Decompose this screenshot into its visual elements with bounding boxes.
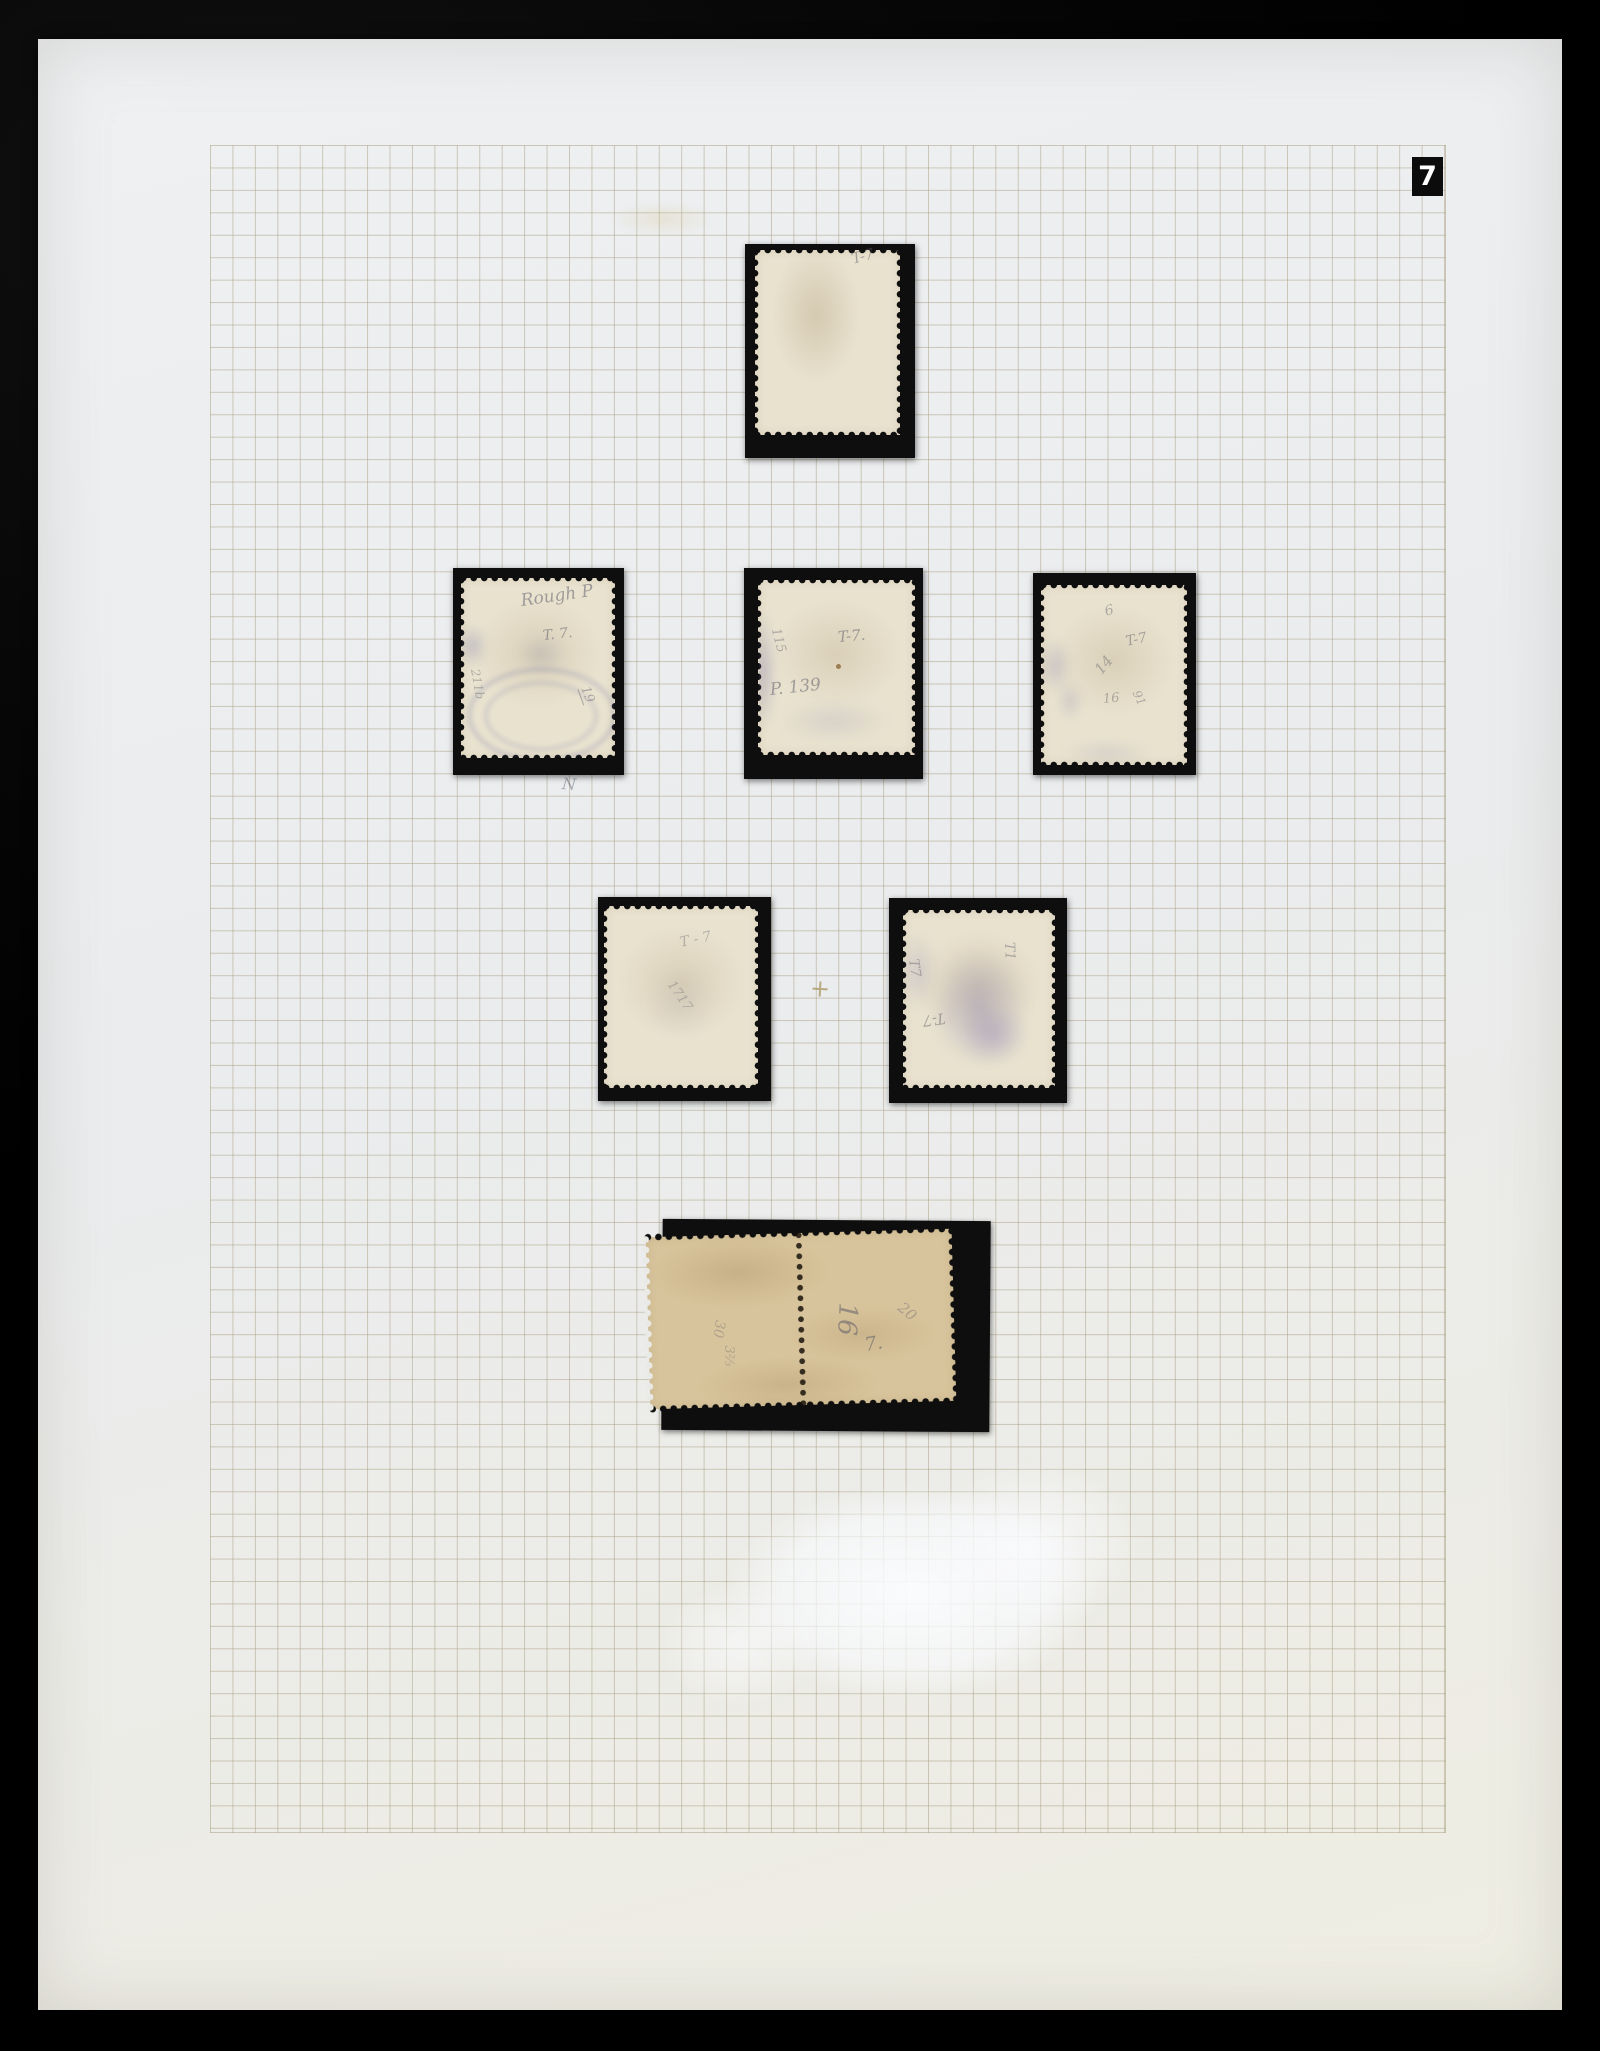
ink-smudge xyxy=(462,624,488,668)
ink-smudge xyxy=(959,1006,1029,1066)
ink-smudge xyxy=(1062,741,1152,764)
ink-smudge xyxy=(1056,681,1084,721)
stamp-6: T7 T1 T-7 xyxy=(903,910,1055,1088)
pencil-mark-n: N xyxy=(561,776,576,793)
pencil-annotation: 16 xyxy=(833,1302,860,1336)
pencil-annotation: 3⅔ xyxy=(722,1345,735,1366)
cross-registration-mark: + xyxy=(809,976,830,1001)
pencil-annotation: T-7 xyxy=(921,1010,946,1028)
stamp-4: 6 T-7 14 16 91 xyxy=(1041,585,1187,765)
cancel-ink-layer xyxy=(904,911,1054,1087)
pencil-annotation: 7. xyxy=(863,1333,884,1355)
stamp-mount-2: Rough P T. 7. 211b 19 xyxy=(453,568,624,775)
stamp-pair: 30 3⅔ 16 20 7. xyxy=(646,1229,957,1409)
page-number-label: 7 xyxy=(1412,157,1443,196)
pencil-annotation: T7 xyxy=(906,958,922,978)
pencil-annotation: 30 xyxy=(710,1319,726,1339)
pencil-annotation: T1 xyxy=(1002,942,1017,961)
pencil-annotation: T-7 xyxy=(1125,631,1149,649)
stamp-mount-3: 115 T-7. P. 139 xyxy=(744,568,923,779)
stamp-2: Rough P T. 7. 211b 19 xyxy=(461,578,615,758)
stamp-mount-6: T7 T1 T-7 xyxy=(889,898,1067,1103)
stamp-paper xyxy=(755,250,900,435)
pencil-annotation: T-7. xyxy=(837,628,866,645)
stamp-mount-4: 6 T-7 14 16 91 xyxy=(1033,573,1196,775)
stamp-mount-5: T - 7 1717 xyxy=(598,897,771,1101)
cancel-ink-layer xyxy=(759,581,914,754)
pencil-annotation: T. 7. xyxy=(542,626,573,643)
pencil-annotation: 16 xyxy=(1102,692,1120,706)
stamp-3: 115 T-7. P. 139 xyxy=(758,580,915,755)
stain-dot xyxy=(836,664,841,669)
stamp-1: T-7 xyxy=(755,250,900,435)
ink-smudge xyxy=(779,701,889,741)
album-photo: 7 T-7 Rough P T. 7. 211b xyxy=(0,0,1600,2051)
stamp-5: T - 7 1717 xyxy=(604,906,758,1088)
stamp-mount-1: T-7 xyxy=(745,244,915,458)
